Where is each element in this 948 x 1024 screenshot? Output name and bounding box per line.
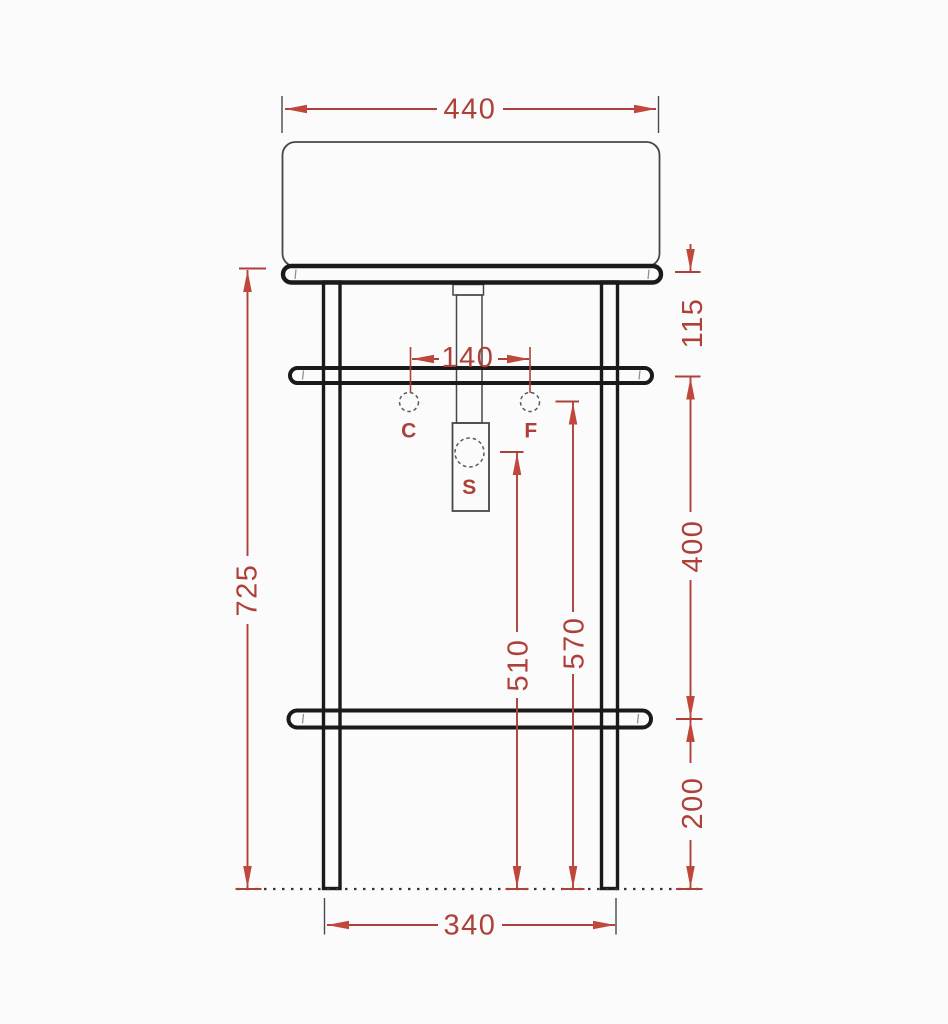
drain-flange [453, 285, 484, 296]
dimension-arrowhead [686, 696, 695, 718]
dimension-arrowheads [243, 105, 695, 930]
connection-f-label: F [524, 420, 537, 443]
dimension-arrowhead [327, 921, 349, 930]
dimension-arrowhead [243, 270, 252, 292]
connection-s-label: S [462, 476, 477, 499]
dim-crossbar-spacing-label: 400 [677, 520, 709, 573]
dimension-arrowhead [513, 453, 522, 475]
dimension-arrowhead [686, 720, 695, 742]
hole-f-circle [521, 393, 540, 412]
weld-mark [639, 371, 640, 380]
dimension-arrowhead [569, 403, 578, 425]
leg-left [324, 282, 341, 889]
dimension-arrowhead [285, 105, 307, 114]
dimension-arrowhead [412, 355, 434, 364]
dim-drain-height-label: 510 [503, 639, 535, 692]
weld-mark [295, 270, 296, 280]
dimension-arrowhead [593, 921, 615, 930]
basin-outline [283, 142, 660, 267]
dim-supply-height-label: 570 [559, 617, 591, 670]
weld-mark [303, 714, 304, 724]
drain-s-circle [455, 438, 484, 467]
top-rail [283, 266, 661, 283]
drawing-canvas: 440 140 340 115 400 200 725 510 570 C F … [0, 0, 948, 1024]
dim-rail-offset-label: 115 [677, 298, 709, 349]
dimension-arrowhead [686, 249, 695, 271]
dim-total-height-label: 725 [232, 564, 264, 617]
dim-tap-spacing-label: 140 [442, 342, 495, 374]
dim-leg-spacing-label: 340 [444, 910, 497, 942]
hole-c-circle [400, 393, 419, 412]
weld-mark [303, 371, 304, 380]
connection-c-label: C [401, 420, 417, 443]
leg-right [602, 282, 618, 889]
dimension-arrowhead [513, 866, 522, 888]
dimension-labels: 440 140 340 115 400 200 725 510 570 C F … [232, 94, 710, 942]
dimension-arrowhead [569, 866, 578, 888]
connection-holes [400, 393, 540, 468]
technical-drawing: 440 140 340 115 400 200 725 510 570 C F … [0, 0, 948, 1024]
dimension-arrowhead [243, 866, 252, 888]
dimension-lines [236, 109, 703, 925]
dimension-arrowhead [686, 378, 695, 400]
lower-crossbar [289, 711, 652, 728]
weld-mark [638, 714, 639, 724]
dimension-arrowhead [507, 355, 529, 364]
dimension-arrowhead [634, 105, 656, 114]
dimension-arrowhead [686, 866, 695, 888]
dim-overall-width-label: 440 [444, 94, 497, 126]
weld-mark [648, 270, 649, 280]
dim-lower-crossbar-height-label: 200 [677, 777, 709, 830]
